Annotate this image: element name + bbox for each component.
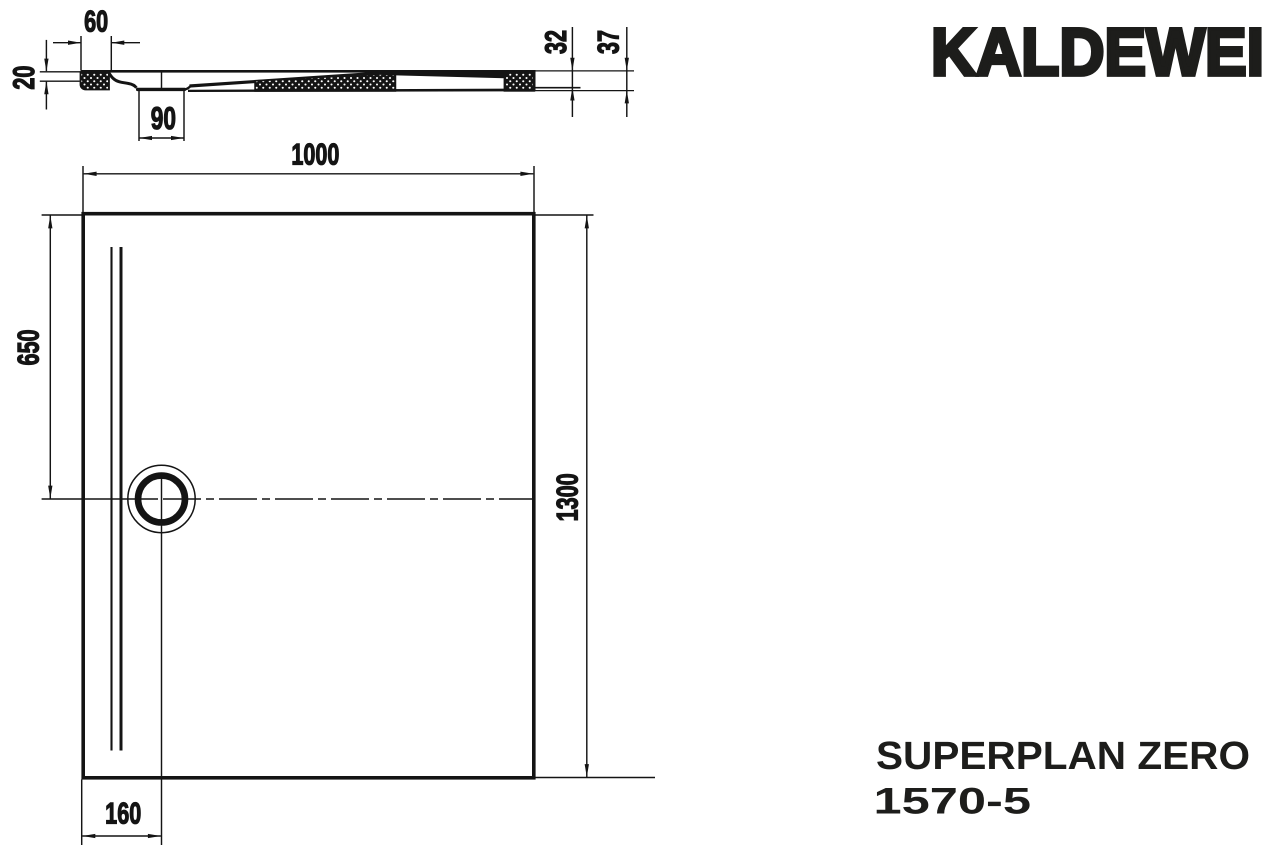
svg-text:1570-5: 1570-5 [874, 781, 1032, 822]
svg-text:32: 32 [540, 30, 573, 54]
svg-text:650: 650 [13, 329, 46, 365]
svg-text:37: 37 [593, 30, 626, 54]
svg-text:160: 160 [105, 798, 141, 831]
svg-text:SUPERPLAN ZERO: SUPERPLAN ZERO [876, 734, 1250, 778]
svg-text:90: 90 [151, 100, 176, 136]
svg-text:20: 20 [8, 66, 41, 90]
svg-text:1300: 1300 [552, 473, 585, 521]
svg-text:KALDEWEI: KALDEWEI [931, 15, 1264, 90]
svg-text:1000: 1000 [291, 139, 339, 172]
svg-text:60: 60 [84, 6, 108, 39]
